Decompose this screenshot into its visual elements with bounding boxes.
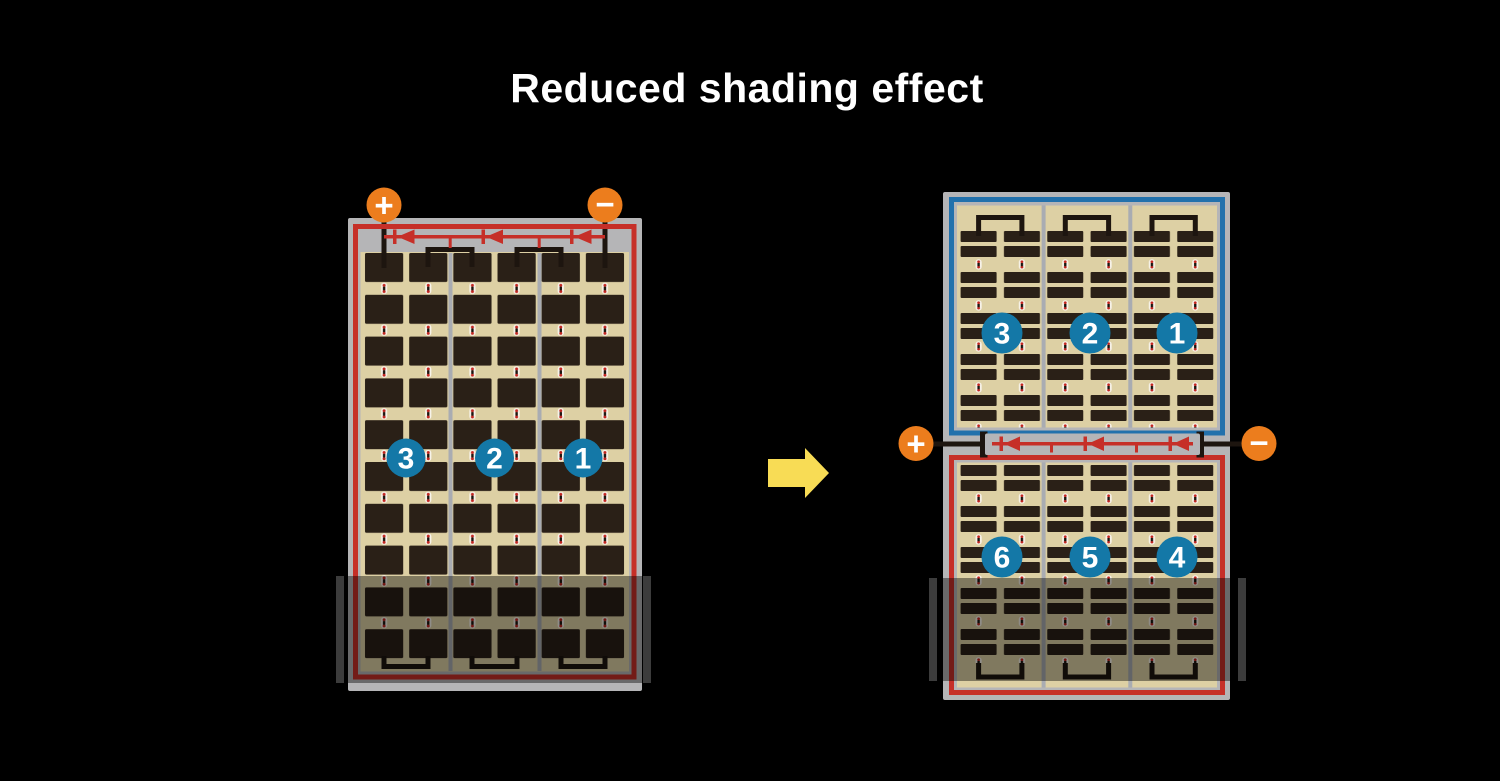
right-top-string-badge-1: 1 xyxy=(1157,313,1198,354)
transform-arrow xyxy=(768,448,829,498)
left-string-number-1: 1 xyxy=(575,443,592,476)
left-string-badge-3: 3 xyxy=(387,439,426,478)
right-minus-sign: − xyxy=(1249,424,1268,461)
right-minus-terminal: − xyxy=(1242,424,1277,461)
right-shade-band xyxy=(929,578,1246,681)
diagram-canvas: Reduced shading effect xyxy=(0,0,1500,781)
right-plus-terminal: + xyxy=(899,425,934,462)
right-top-string-number-2: 2 xyxy=(1082,318,1099,351)
right-bottom-string-badge-4: 4 xyxy=(1157,537,1198,578)
left-string-badge-1: 1 xyxy=(564,439,603,478)
right-top-string-badge-3: 3 xyxy=(982,313,1023,354)
left-plus-sign: + xyxy=(374,187,393,224)
left-plus-terminal: + xyxy=(367,187,402,224)
right-bottom-string-number-6: 6 xyxy=(994,542,1011,575)
left-minus-sign: − xyxy=(595,186,614,223)
right-top-string-badge-2: 2 xyxy=(1070,313,1111,354)
right-top-divider-2 xyxy=(1128,206,1132,428)
left-diode-tap-1 xyxy=(449,237,452,248)
left-string-number-2: 2 xyxy=(486,443,503,476)
page-title: Reduced shading effect xyxy=(510,65,983,111)
left-string-number-3: 3 xyxy=(398,443,415,476)
right-plus-sign: + xyxy=(906,425,925,462)
right-bottom-string-badge-6: 6 xyxy=(982,537,1023,578)
right-top-divider-1 xyxy=(1042,206,1046,428)
left-diode-tap-2 xyxy=(538,237,541,248)
right-top-string-number-3: 3 xyxy=(994,318,1011,351)
right-bottom-string-badge-5: 5 xyxy=(1070,537,1111,578)
left-string-badge-2: 2 xyxy=(475,439,514,478)
right-bottom-string-number-4: 4 xyxy=(1169,542,1186,575)
left-minus-terminal: − xyxy=(588,186,623,223)
right-diode-tap-2 xyxy=(1135,444,1138,453)
left-module: + − 3 2 1 xyxy=(336,186,651,692)
right-bottom-string-number-5: 5 xyxy=(1082,542,1099,575)
right-top-string-number-1: 1 xyxy=(1169,318,1186,351)
left-shade-band xyxy=(336,576,651,683)
right-module: + − 3 2 1 6 5 4 xyxy=(899,192,1277,700)
right-plus-lead-wire xyxy=(930,442,983,447)
right-diode-tap-1 xyxy=(1050,444,1053,453)
